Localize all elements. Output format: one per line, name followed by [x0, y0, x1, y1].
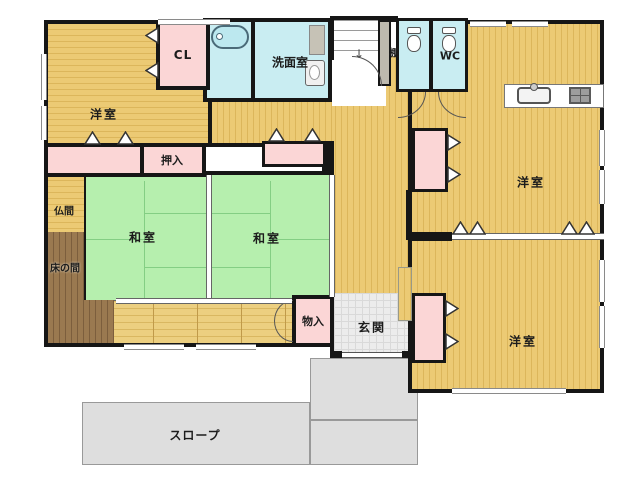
washer-pan-icon	[309, 25, 325, 55]
sliding-door-icon	[447, 134, 461, 151]
window-icon	[158, 19, 230, 25]
room-label-washroom: 洗面室	[272, 54, 308, 71]
bathtub-drain-icon	[216, 33, 223, 40]
sliding-door-icon	[145, 27, 159, 44]
room-label-washitsu-left: 和室	[129, 229, 157, 246]
sliding-door-icon	[304, 128, 321, 142]
room-label-monoire: 物入	[302, 313, 324, 329]
room-label-genkan: 玄関	[358, 319, 386, 336]
toilet-tank-icon	[407, 27, 421, 34]
window-icon	[124, 344, 184, 350]
fusuma-divider	[206, 175, 212, 301]
kitchen-counter	[504, 84, 604, 108]
window-icon	[599, 130, 605, 166]
room-label-washitsu-right: 和室	[253, 230, 281, 247]
window-icon	[196, 344, 256, 350]
floor-plan: ↓	[0, 0, 640, 490]
sliding-door-icon	[452, 221, 469, 235]
closet-top-right-room	[412, 128, 448, 192]
window-icon	[41, 106, 47, 140]
sliding-door-icon	[445, 300, 459, 317]
toilet-bowl-icon	[407, 35, 421, 52]
wall-segment	[402, 351, 412, 358]
faucet-icon	[530, 83, 538, 91]
wall-segment	[408, 232, 452, 241]
tatami-line	[212, 213, 270, 214]
closet-bottom-right-room	[412, 293, 446, 363]
room-label-western-right: 洋室	[517, 174, 545, 191]
room-label-ramp: スロープ	[169, 427, 220, 444]
room-label-shelf: 棚	[389, 45, 399, 60]
room-label-butsuma: 仏間	[54, 203, 74, 218]
room-label-western-top-left: 洋室	[90, 106, 118, 123]
veranda-corner	[44, 300, 114, 347]
toilet-tank-icon	[442, 27, 456, 34]
room-label-tokonoma: 床の間	[50, 260, 80, 275]
porch-upper-step	[310, 358, 418, 420]
stove-icon	[569, 87, 591, 104]
sliding-door-icon	[561, 221, 578, 235]
sliding-door-icon	[578, 221, 595, 235]
room-label-wc: WC	[440, 50, 460, 63]
closet-strip	[44, 143, 144, 177]
bathroom	[203, 18, 255, 102]
tatami-line	[144, 213, 208, 214]
wc-stall-left	[396, 18, 432, 92]
sliding-door-icon	[268, 128, 285, 142]
tatami-line	[212, 267, 270, 268]
room-label-oshiire: 押入	[161, 152, 183, 168]
window-icon	[599, 306, 605, 348]
entrance-step	[398, 267, 412, 321]
entrance-sliding-door	[342, 352, 402, 358]
window-icon	[599, 170, 605, 204]
sliding-door-icon	[469, 221, 486, 235]
window-icon	[599, 260, 605, 302]
sliding-door-icon	[447, 166, 461, 183]
veranda-engawa	[110, 300, 294, 347]
sliding-door-track	[116, 298, 292, 304]
window-icon	[512, 21, 548, 27]
sliding-door-icon	[445, 333, 459, 350]
sliding-door-track	[329, 175, 335, 297]
bathtub-icon	[211, 25, 249, 49]
wall-segment	[330, 351, 342, 358]
window-icon	[41, 54, 47, 100]
tatami-line	[144, 267, 208, 268]
window-icon	[470, 21, 506, 27]
room-label-cl: CL	[174, 48, 192, 62]
sink-bowl-icon	[309, 65, 320, 80]
sliding-door-icon	[145, 62, 159, 79]
sliding-door-icon	[84, 131, 101, 145]
closet-mini	[262, 141, 326, 167]
sliding-door-icon	[117, 131, 134, 145]
stove-burners-icon	[569, 87, 591, 104]
porch-lower-step	[310, 420, 418, 465]
room-label-western-bottom-right: 洋室	[509, 333, 537, 350]
window-icon	[452, 388, 566, 394]
